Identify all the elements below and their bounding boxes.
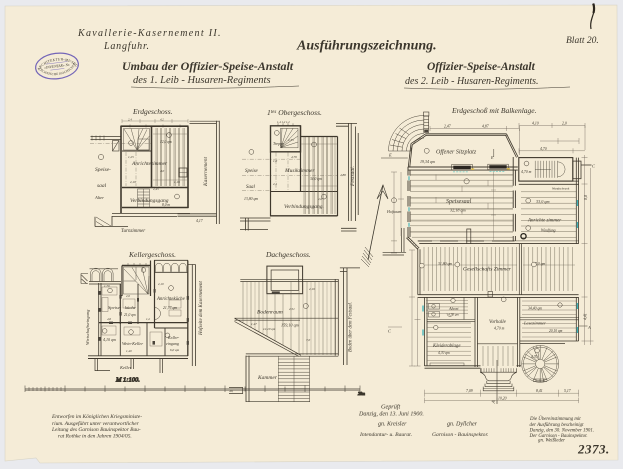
svg-text:der Ausführung bescheinigt: der Ausführung bescheinigt bbox=[530, 423, 585, 428]
svg-text:gn. Kreisler: gn. Kreisler bbox=[378, 422, 407, 428]
svg-text:Danzig, den 30. November 1901.: Danzig, den 30. November 1901. bbox=[529, 428, 595, 433]
svg-text:Wirtschaftseingang: Wirtschaftseingang bbox=[85, 309, 90, 345]
svg-text:M 1:100.: M 1:100. bbox=[115, 377, 140, 384]
svg-text:Kavallerie-Kasernement II.: Kavallerie-Kasernement II. bbox=[77, 28, 222, 39]
svg-text:saal: saal bbox=[97, 183, 107, 189]
svg-text:Langfuhr.: Langfuhr. bbox=[103, 41, 150, 52]
svg-text:eingang: eingang bbox=[166, 341, 179, 346]
svg-text:Kleiderablage: Kleiderablage bbox=[432, 344, 461, 349]
svg-text:des 2. Leib - Husaren-Regi: des 2. Leib - Husaren-Regiments. bbox=[405, 76, 539, 87]
svg-text:Verbindungsgang.: Verbindungsgang. bbox=[284, 204, 324, 210]
svg-text:Anrichtezimmer: Anrichtezimmer bbox=[131, 161, 168, 167]
svg-text:Offener Sitzplatz: Offener Sitzplatz bbox=[436, 149, 477, 156]
svg-text:Boden über dem Festsaal.: Boden über dem Festsaal. bbox=[349, 302, 354, 352]
svg-text:gn. Weißleder: gn. Weißleder bbox=[538, 439, 565, 444]
svg-text:Lesezimmer: Lesezimmer bbox=[523, 321, 546, 326]
svg-text:Garnison - Bauinspektor.: Garnison - Bauinspektor. bbox=[432, 432, 488, 438]
svg-text:Gesellschafts Zimmer: Gesellschafts Zimmer bbox=[463, 266, 512, 273]
svg-text:Leitung des Garnison Bauinspek: Leitung des Garnison Bauinspektor Bau- bbox=[51, 427, 141, 433]
svg-text:Saal: Saal bbox=[246, 185, 256, 190]
svg-text:Kammer: Kammer bbox=[257, 375, 278, 381]
svg-text:Wein-Keller: Wein-Keller bbox=[122, 341, 143, 346]
svg-text:20m: 20m bbox=[358, 391, 365, 396]
svg-text:Anrichte zimmer: Anrichte zimmer bbox=[527, 219, 561, 224]
svg-text:Keller: Keller bbox=[119, 365, 132, 370]
svg-text:Keller-: Keller- bbox=[167, 335, 180, 340]
svg-text:Abort: Abort bbox=[448, 306, 459, 311]
svg-text:Festsaal.: Festsaal. bbox=[350, 166, 356, 187]
svg-text:Vorhalle: Vorhalle bbox=[489, 320, 507, 325]
svg-text:Hofseite dem Kasernement: Hofseite dem Kasernement bbox=[199, 281, 204, 336]
svg-text:Speisesaal: Speisesaal bbox=[446, 199, 472, 205]
svg-text:Hofraum: Hofraum bbox=[386, 209, 402, 214]
svg-text:Speise: Speise bbox=[245, 169, 259, 174]
svg-text:Die Übereinstimmung mit: Die Übereinstimmung mit bbox=[529, 416, 581, 422]
svg-text:Ausführungszeichnung.: Ausführungszeichnung. bbox=[296, 39, 437, 54]
svg-text:Anrichteküche: Anrichteküche bbox=[156, 297, 186, 302]
svg-text:Intendantur- u. Baurat.: Intendantur- u. Baurat. bbox=[359, 432, 412, 438]
svg-text:2373.: 2373. bbox=[577, 442, 610, 457]
svg-text:küche: küche bbox=[125, 305, 136, 310]
svg-text:Danzig, den 13. Juni 1900.: Danzig, den 13. Juni 1900. bbox=[358, 412, 424, 418]
svg-text:Entworfen im Königlichen Krieg: Entworfen im Königlichen Kriegsministe- bbox=[51, 413, 142, 420]
svg-text:gn. Dyllcher: gn. Dyllcher bbox=[447, 422, 478, 428]
svg-text:Dachgeschoss.: Dachgeschoss. bbox=[265, 250, 311, 259]
svg-text:Bodenraum: Bodenraum bbox=[257, 310, 283, 316]
svg-text:Kellergeschoss.: Kellergeschoss. bbox=[128, 250, 176, 259]
svg-text:Musikzimmer: Musikzimmer bbox=[284, 168, 315, 174]
svg-text:Windfang: Windfang bbox=[541, 229, 556, 233]
svg-text:rat Rothke in den Jahren 1904/: rat Rothke in den Jahren 1904/05. bbox=[58, 434, 132, 440]
svg-text:Wandschrank: Wandschrank bbox=[552, 187, 570, 191]
svg-text:Turnzimmer: Turnzimmer bbox=[121, 229, 145, 234]
svg-text:Geprüft: Geprüft bbox=[381, 404, 401, 411]
svg-text:Offizier-Speise-Anstalt: Offizier-Speise-Anstalt bbox=[427, 61, 536, 73]
svg-text:Umbau der Offizier-Speise-Anst: Umbau der Offizier-Speise-Anstalt bbox=[122, 59, 294, 73]
svg-text:rium. Ausgeführt unter verant: rium. Ausgeführt unter verantwortlicher bbox=[52, 420, 140, 427]
svg-text:Erdgeschoss.: Erdgeschoss. bbox=[132, 107, 173, 116]
svg-text:Erdgeschoß mit Balkenlage.: Erdgeschoß mit Balkenlage. bbox=[451, 106, 537, 115]
svg-text:E: E bbox=[388, 153, 392, 158]
svg-text:Treppe: Treppe bbox=[273, 141, 284, 146]
svg-text:Kasernement: Kasernement bbox=[203, 157, 209, 187]
svg-text:Speise-: Speise- bbox=[95, 167, 111, 173]
svg-text:Alter: Alter bbox=[94, 195, 104, 200]
svg-text:des 1. Leib - Husaren-Regimen: des 1. Leib - Husaren-Regiments bbox=[133, 75, 271, 86]
svg-text:Speise-: Speise- bbox=[108, 305, 122, 310]
svg-text:Blatt 20.: Blatt 20. bbox=[566, 36, 599, 46]
svg-text:E: E bbox=[490, 155, 494, 160]
